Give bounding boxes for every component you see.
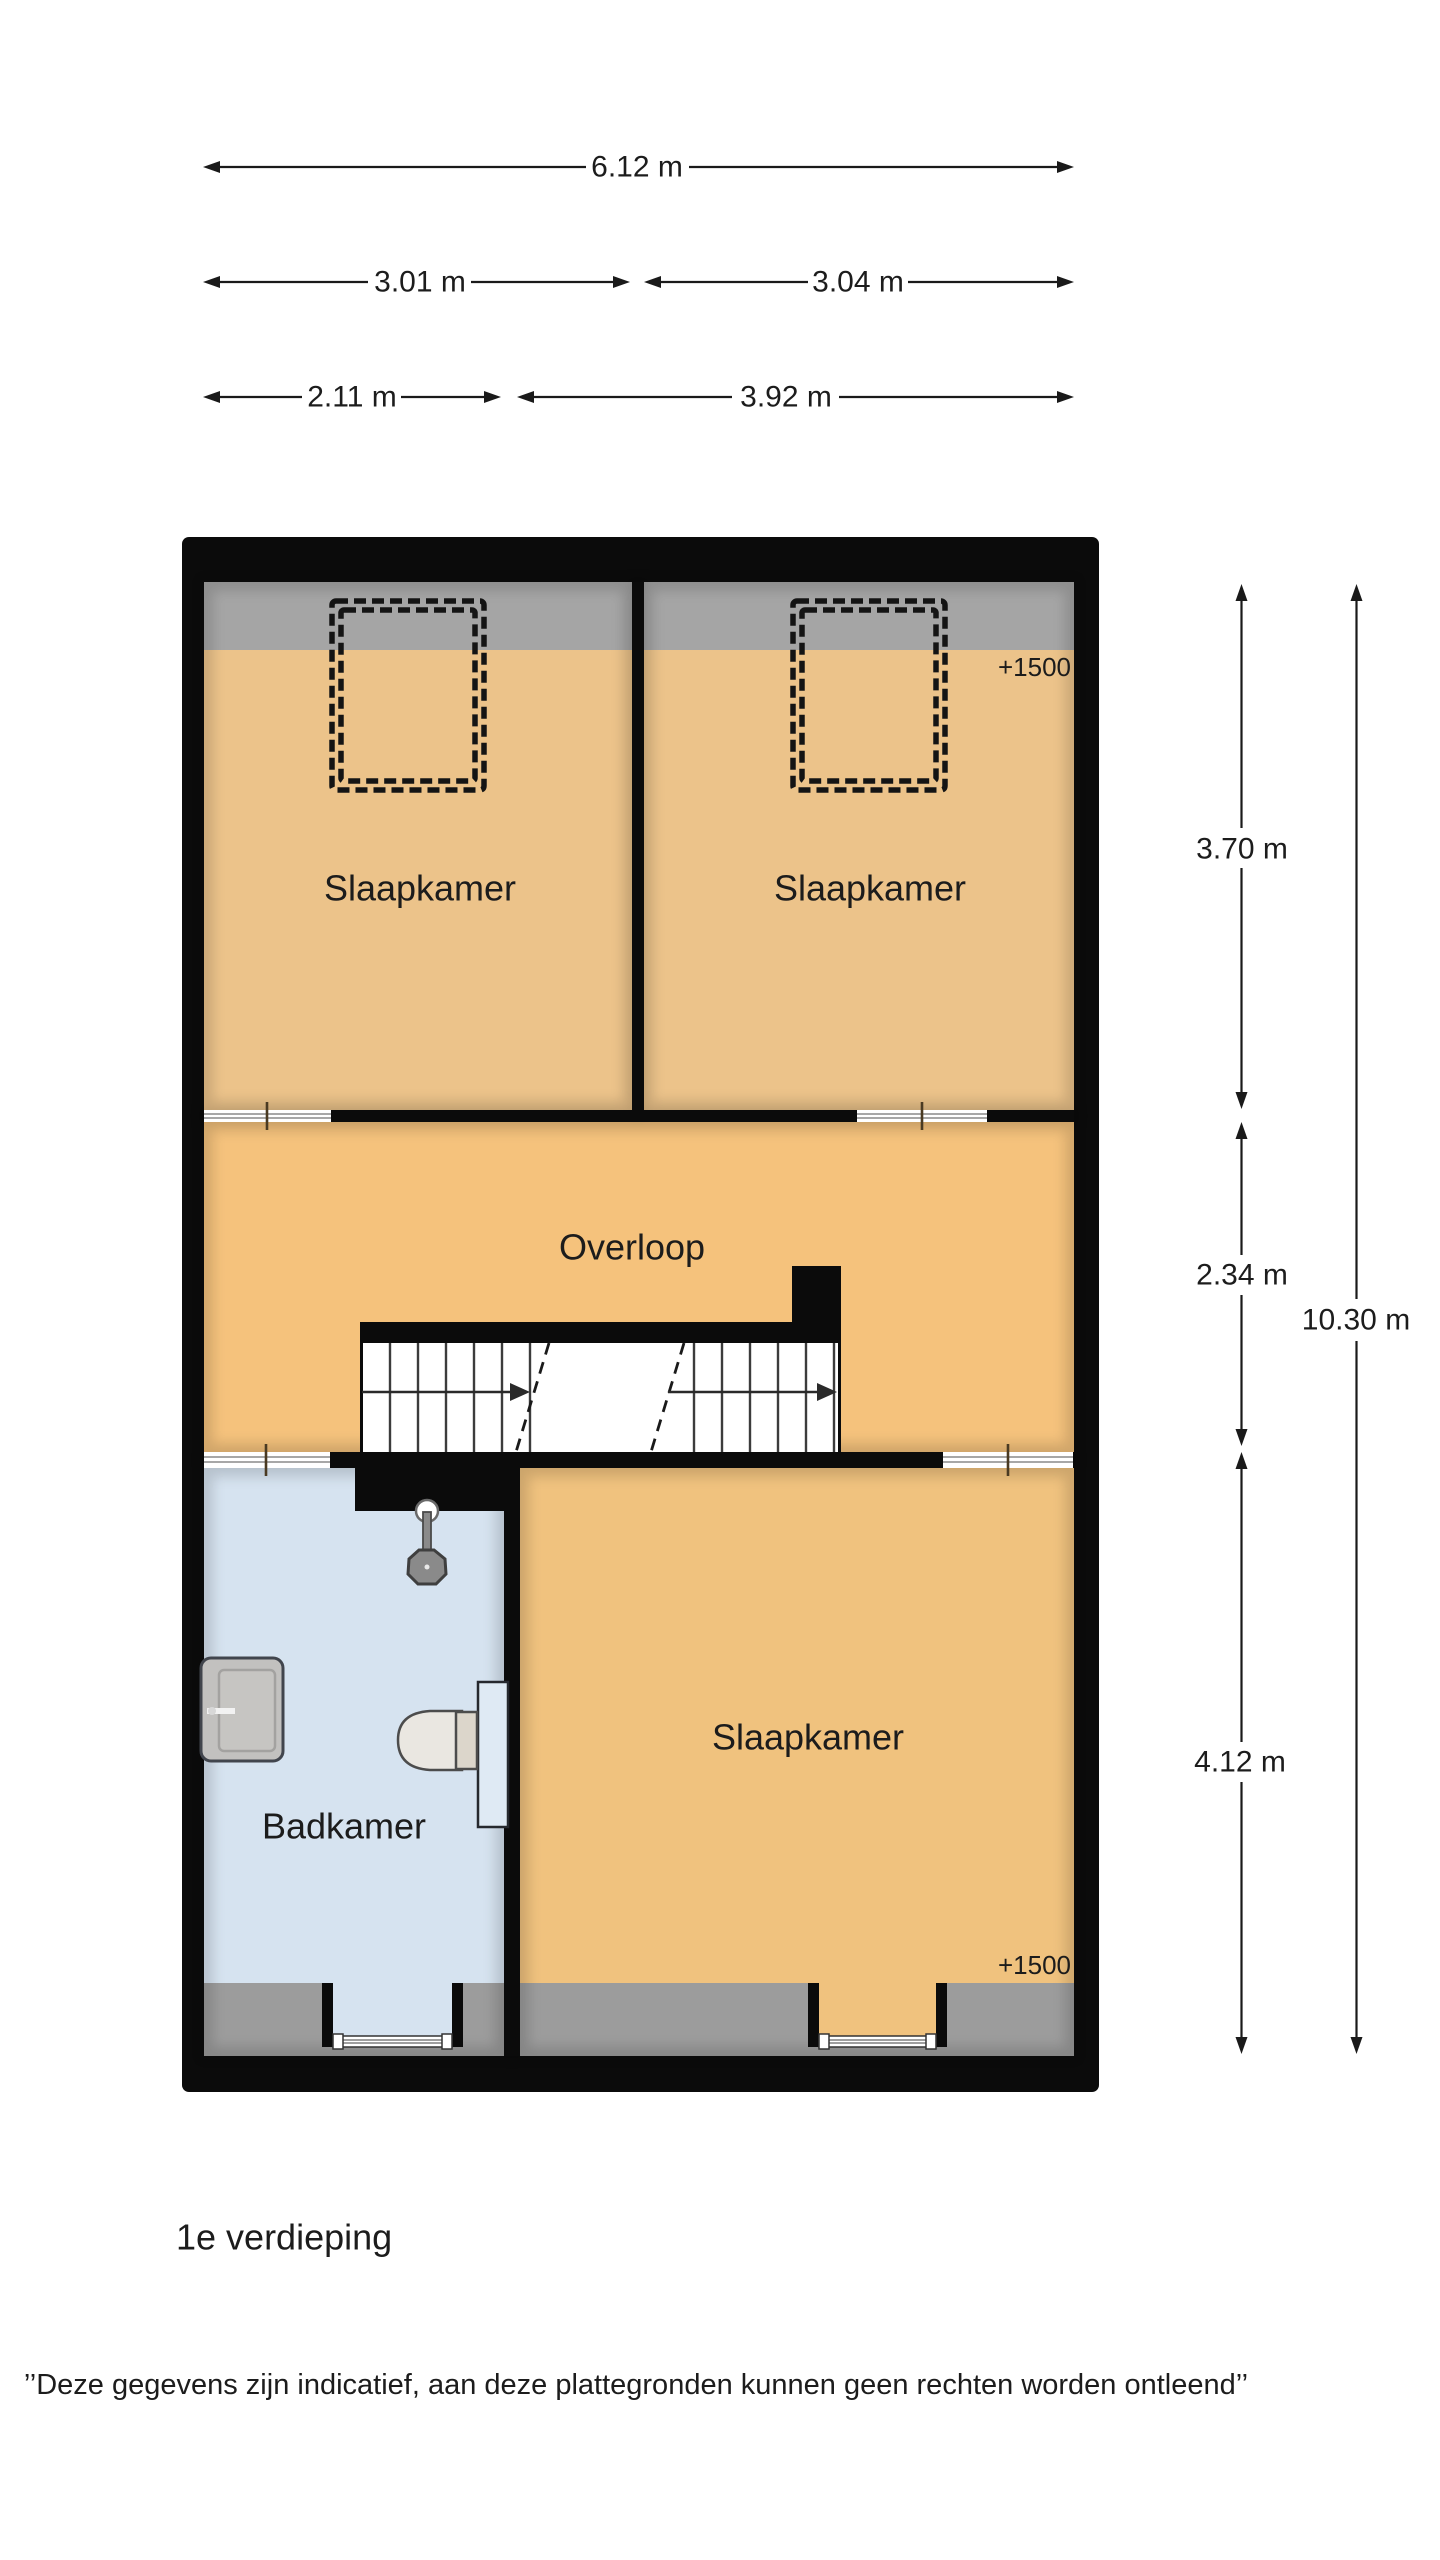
svg-text:’’Deze gegevens zijn indicatie: ’’Deze gegevens zijn indicatief, aan dez… <box>24 2369 1248 2401</box>
svg-text:+1500: +1500 <box>998 652 1071 682</box>
svg-text:Slaapkamer: Slaapkamer <box>774 868 966 909</box>
svg-text:Badkamer: Badkamer <box>262 1806 426 1847</box>
svg-text:2.34 m: 2.34 m <box>1196 1259 1288 1292</box>
svg-text:2.11 m: 2.11 m <box>307 381 397 414</box>
svg-text:3.70 m: 3.70 m <box>1196 833 1288 866</box>
svg-text:Overloop: Overloop <box>559 1227 705 1268</box>
svg-text:6.12 m: 6.12 m <box>591 151 683 184</box>
svg-text:3.04 m: 3.04 m <box>812 266 904 299</box>
svg-text:Slaapkamer: Slaapkamer <box>324 868 516 909</box>
svg-text:Slaapkamer: Slaapkamer <box>712 1717 904 1758</box>
svg-text:3.92 m: 3.92 m <box>740 381 832 414</box>
svg-text:1e verdieping: 1e verdieping <box>176 2217 392 2258</box>
svg-text:3.01 m: 3.01 m <box>374 266 466 299</box>
svg-text:4.12 m: 4.12 m <box>1194 1746 1286 1779</box>
svg-text:10.30 m: 10.30 m <box>1302 1304 1410 1337</box>
svg-text:+1500: +1500 <box>998 1950 1071 1980</box>
